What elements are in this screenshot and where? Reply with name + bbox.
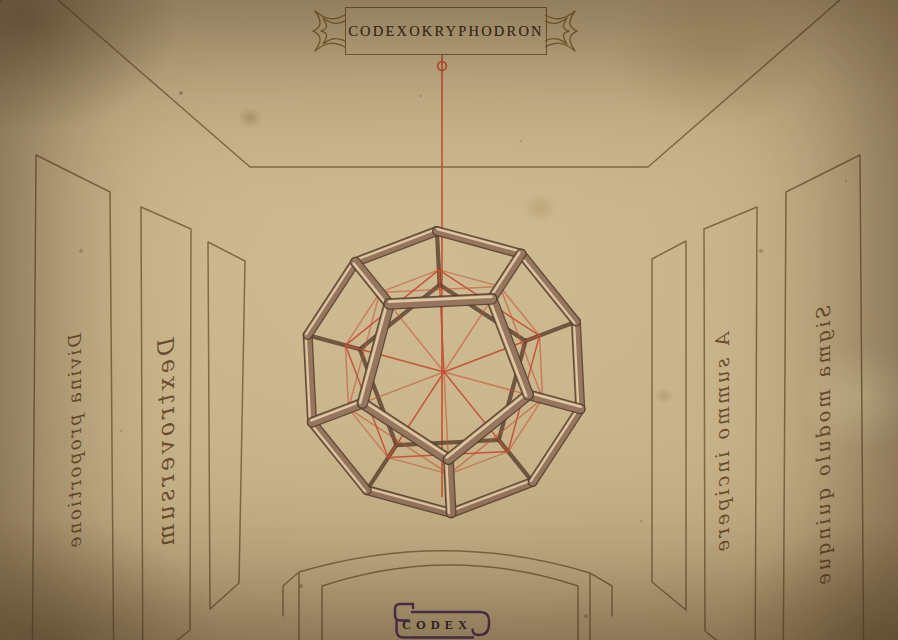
- codex-label: CODEX: [402, 618, 472, 632]
- mirror-text-left-outer: Divina proportione: [64, 331, 85, 548]
- title-plaque: CODEXOKRYPHODRON: [345, 7, 547, 55]
- dodecahedron-drawing: [306, 229, 581, 513]
- plaque-ornament-left-icon: [311, 5, 345, 57]
- page-title: CODEXOKRYPHODRON: [348, 23, 544, 40]
- mirror-text-right-outer: Sigma modulo quinque: [812, 304, 834, 586]
- parchment-scene: CODEXOKRYPHODRON Divina proportione Dext…: [0, 0, 898, 640]
- mirror-text-right-inner: A summo incipere: [711, 331, 733, 553]
- room-drawing: [0, 0, 898, 640]
- wall-panel-right-inner: [652, 241, 686, 610]
- wall-panel-left-inner: [208, 242, 245, 609]
- plaque-ornament-right-icon: [545, 5, 579, 57]
- codex-scroll-icon[interactable]: CODEX: [385, 598, 510, 640]
- mirror-text-left-inner: Dextroversum: [153, 335, 179, 548]
